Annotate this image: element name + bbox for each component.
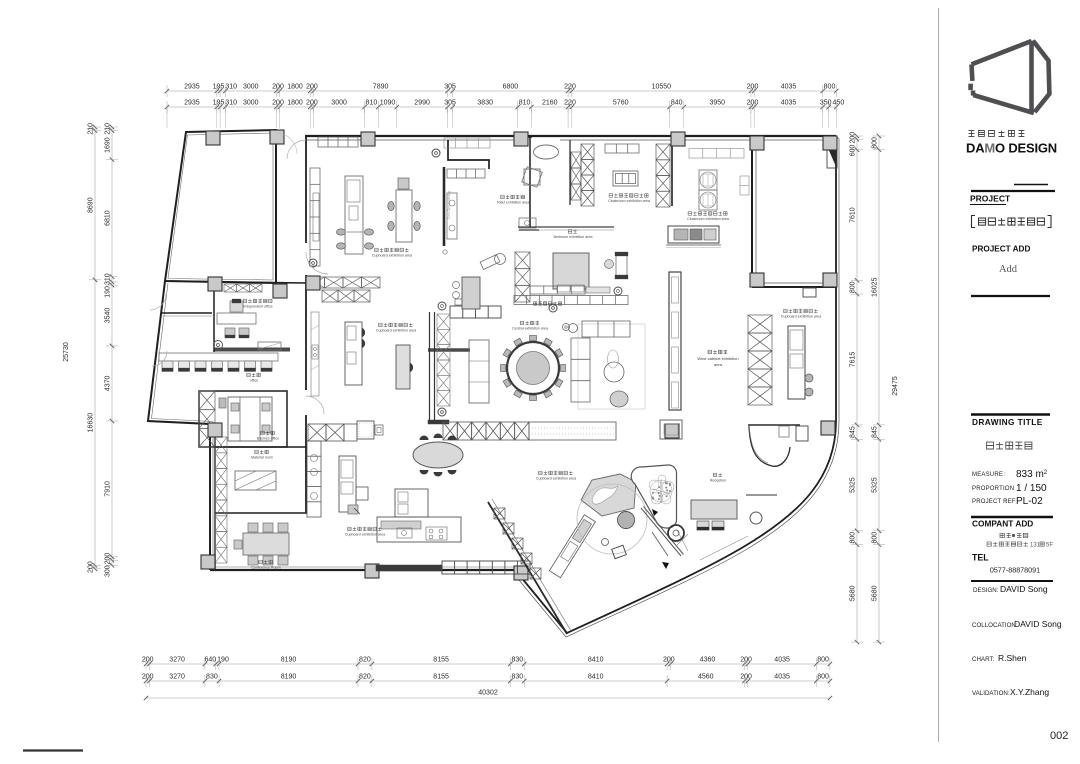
svg-text:40302: 40302 — [478, 690, 498, 697]
svg-text:Wine cabinet exhibition: Wine cabinet exhibition — [697, 356, 738, 361]
svg-text:3270: 3270 — [169, 656, 185, 663]
svg-text:210: 210 — [87, 123, 94, 135]
svg-text:3830: 3830 — [477, 99, 493, 106]
svg-text:195: 195 — [213, 99, 225, 106]
svg-text::: : — [1004, 471, 1006, 478]
svg-text::: : — [1005, 498, 1007, 505]
svg-text:833 m2: 833 m2 — [1016, 469, 1048, 480]
svg-text:7615: 7615 — [849, 352, 856, 368]
svg-text:305: 305 — [444, 99, 456, 106]
svg-text:200: 200 — [740, 673, 752, 680]
svg-text:TEL: TEL — [972, 553, 989, 563]
svg-text:DAVID Song: DAVID Song — [1014, 619, 1062, 629]
svg-text:2935: 2935 — [184, 83, 200, 90]
svg-text:305: 305 — [444, 83, 456, 90]
svg-text:Busines office: Busines office — [257, 437, 279, 441]
svg-text:800: 800 — [871, 532, 878, 544]
svg-text:4035: 4035 — [781, 99, 797, 106]
svg-text:3000: 3000 — [243, 99, 259, 106]
svg-text:845: 845 — [849, 426, 856, 438]
svg-text:3000: 3000 — [331, 99, 347, 106]
svg-text:PROJECT ADD: PROJECT ADD — [972, 245, 1030, 254]
svg-text:8410: 8410 — [588, 673, 604, 680]
svg-text:840: 840 — [671, 99, 683, 106]
svg-text:3540: 3540 — [104, 308, 111, 324]
svg-text:6800: 6800 — [503, 83, 519, 90]
svg-text:4560: 4560 — [698, 673, 714, 680]
svg-text:350: 350 — [820, 99, 832, 106]
svg-text:7910: 7910 — [104, 481, 111, 497]
svg-text:PL-02: PL-02 — [1016, 496, 1043, 507]
svg-text:450: 450 — [833, 99, 845, 106]
svg-text:3950: 3950 — [710, 99, 726, 106]
svg-text:6810: 6810 — [104, 210, 111, 226]
svg-text:200: 200 — [747, 83, 759, 90]
svg-text:200: 200 — [142, 656, 154, 663]
svg-text:2935: 2935 — [184, 99, 200, 106]
svg-text:Cupboard exhibition area: Cupboard exhibition area — [376, 329, 416, 333]
svg-text:8690: 8690 — [87, 197, 94, 213]
svg-text:X.Y.Zhang: X.Y.Zhang — [1010, 687, 1049, 697]
svg-text:DRAWING TITLE: DRAWING TITLE — [972, 417, 1043, 427]
svg-text:Conference Room: Conference Room — [251, 566, 280, 570]
svg-text:4035: 4035 — [781, 83, 797, 90]
svg-text:8190: 8190 — [281, 673, 297, 680]
svg-text:5325: 5325 — [871, 477, 878, 493]
svg-text:MEASURE: MEASURE — [972, 472, 1003, 478]
svg-text:2160: 2160 — [542, 99, 558, 106]
svg-text:DAMO DESIGN: DAMO DESIGN — [966, 141, 1057, 156]
svg-text:Cupboard exhibition area: Cupboard exhibition area — [345, 533, 385, 537]
svg-text:200: 200 — [272, 83, 284, 90]
svg-text:190: 190 — [104, 286, 111, 298]
svg-text:4360: 4360 — [700, 656, 716, 663]
svg-text:002: 002 — [1050, 730, 1068, 742]
svg-text:8410: 8410 — [588, 656, 604, 663]
svg-text:200: 200 — [104, 553, 111, 565]
svg-text:DAVID Song: DAVID Song — [1000, 584, 1048, 594]
svg-text:810: 810 — [519, 99, 531, 106]
svg-text:600: 600 — [849, 144, 856, 156]
svg-text:131: 131 — [1030, 542, 1041, 548]
svg-text:200: 200 — [87, 561, 94, 573]
svg-text:8190: 8190 — [281, 656, 297, 663]
svg-text:office: office — [250, 379, 259, 383]
svg-text:1690: 1690 — [104, 137, 111, 153]
svg-text:Reception: Reception — [710, 479, 726, 483]
svg-text:220: 220 — [564, 99, 576, 106]
svg-text:830: 830 — [511, 656, 523, 663]
svg-text:200: 200 — [306, 83, 318, 90]
svg-text:Material room: Material room — [251, 456, 273, 460]
svg-text:10550: 10550 — [652, 83, 672, 90]
svg-text:5680: 5680 — [871, 585, 878, 601]
svg-text:25730: 25730 — [63, 342, 70, 362]
svg-text:8155: 8155 — [433, 673, 449, 680]
svg-text:5680: 5680 — [849, 585, 856, 601]
svg-text:310: 310 — [225, 99, 237, 106]
svg-text:800: 800 — [849, 532, 856, 544]
svg-text:16025: 16025 — [871, 277, 878, 297]
svg-text:CHART:: CHART: — [972, 656, 995, 663]
svg-text:R.Shen: R.Shen — [998, 653, 1027, 663]
svg-text:1800: 1800 — [287, 83, 303, 90]
svg-text:Toilet exhibition area: Toilet exhibition area — [497, 201, 530, 205]
svg-text:PROJECT REF: PROJECT REF — [972, 499, 1016, 505]
svg-text:800: 800 — [817, 673, 829, 680]
svg-text:area: area — [714, 362, 723, 367]
svg-text:Cloakroom exhibition area: Cloakroom exhibition area — [608, 199, 650, 203]
svg-text:810: 810 — [366, 99, 378, 106]
svg-text:Add: Add — [999, 264, 1018, 275]
svg-text:0577-88878091: 0577-88878091 — [990, 566, 1040, 575]
svg-text:5760: 5760 — [613, 99, 629, 106]
svg-text:220: 220 — [564, 83, 576, 90]
svg-text:200: 200 — [740, 656, 752, 663]
svg-text:Bedroom exhibition area: Bedroom exhibition area — [554, 235, 593, 239]
svg-text:200: 200 — [306, 99, 318, 106]
svg-text::: : — [1005, 485, 1007, 492]
svg-text:2990: 2990 — [414, 99, 430, 106]
svg-text:200: 200 — [272, 99, 284, 106]
svg-text:820: 820 — [359, 673, 371, 680]
svg-text:VALIDATION:: VALIDATION: — [972, 690, 1010, 697]
svg-text:7890: 7890 — [373, 83, 389, 90]
svg-text:640: 640 — [204, 656, 216, 663]
svg-text:4035: 4035 — [774, 673, 790, 680]
svg-text:830: 830 — [511, 673, 523, 680]
svg-text:800: 800 — [817, 656, 829, 663]
svg-text:210: 210 — [104, 123, 111, 135]
svg-text:845: 845 — [871, 426, 878, 438]
svg-text:Cupboard exhibition area: Cupboard exhibition area — [781, 315, 821, 319]
svg-text:16630: 16630 — [87, 413, 94, 433]
svg-text:800: 800 — [871, 137, 878, 149]
svg-text:200: 200 — [142, 673, 154, 680]
svg-text:Cupboard exhibition area: Cupboard exhibition area — [536, 477, 576, 481]
svg-text:820: 820 — [359, 656, 371, 663]
svg-text:Independent office: Independent office — [243, 305, 273, 309]
svg-text:29475: 29475 — [892, 376, 899, 396]
svg-text:COMPANT ADD: COMPANT ADD — [972, 519, 1033, 529]
svg-text:5325: 5325 — [849, 477, 856, 493]
svg-text:Door Ope exhibiting: Door Ope exhibiting — [447, 191, 451, 219]
svg-text:1800: 1800 — [287, 99, 303, 106]
svg-text:5F: 5F — [1046, 542, 1053, 548]
svg-text:1 / 150: 1 / 150 — [1016, 483, 1047, 494]
svg-text:4370: 4370 — [104, 376, 111, 392]
svg-text:Central exhibition area: Central exhibition area — [512, 327, 548, 331]
svg-text:4035: 4035 — [774, 656, 790, 663]
svg-text:Cloakroom exhibition area: Cloakroom exhibition area — [687, 217, 729, 221]
svg-text:310: 310 — [225, 83, 237, 90]
svg-text:DESIGN:: DESIGN: — [973, 587, 999, 594]
svg-text:190: 190 — [217, 656, 229, 663]
svg-text:195: 195 — [213, 83, 225, 90]
svg-text:200: 200 — [747, 99, 759, 106]
svg-text:COLLOCATION:: COLLOCATION: — [972, 622, 1018, 629]
svg-text:8155: 8155 — [433, 656, 449, 663]
svg-text:Cupboard exhibition area: Cupboard exhibition area — [372, 254, 412, 258]
svg-text:310: 310 — [104, 273, 111, 285]
svg-text:PROJECT: PROJECT — [970, 194, 1011, 204]
svg-text:200: 200 — [663, 656, 675, 663]
svg-text:800: 800 — [849, 281, 856, 293]
svg-text:300: 300 — [104, 565, 111, 577]
svg-text:3270: 3270 — [169, 673, 185, 680]
svg-text:7610: 7610 — [849, 207, 856, 223]
svg-text:PROPORTION: PROPORTION — [972, 486, 1014, 492]
svg-text:200: 200 — [849, 132, 856, 144]
svg-text:800: 800 — [824, 83, 836, 90]
svg-text:1090: 1090 — [380, 99, 396, 106]
svg-text:830: 830 — [206, 673, 218, 680]
svg-text:3000: 3000 — [243, 83, 259, 90]
